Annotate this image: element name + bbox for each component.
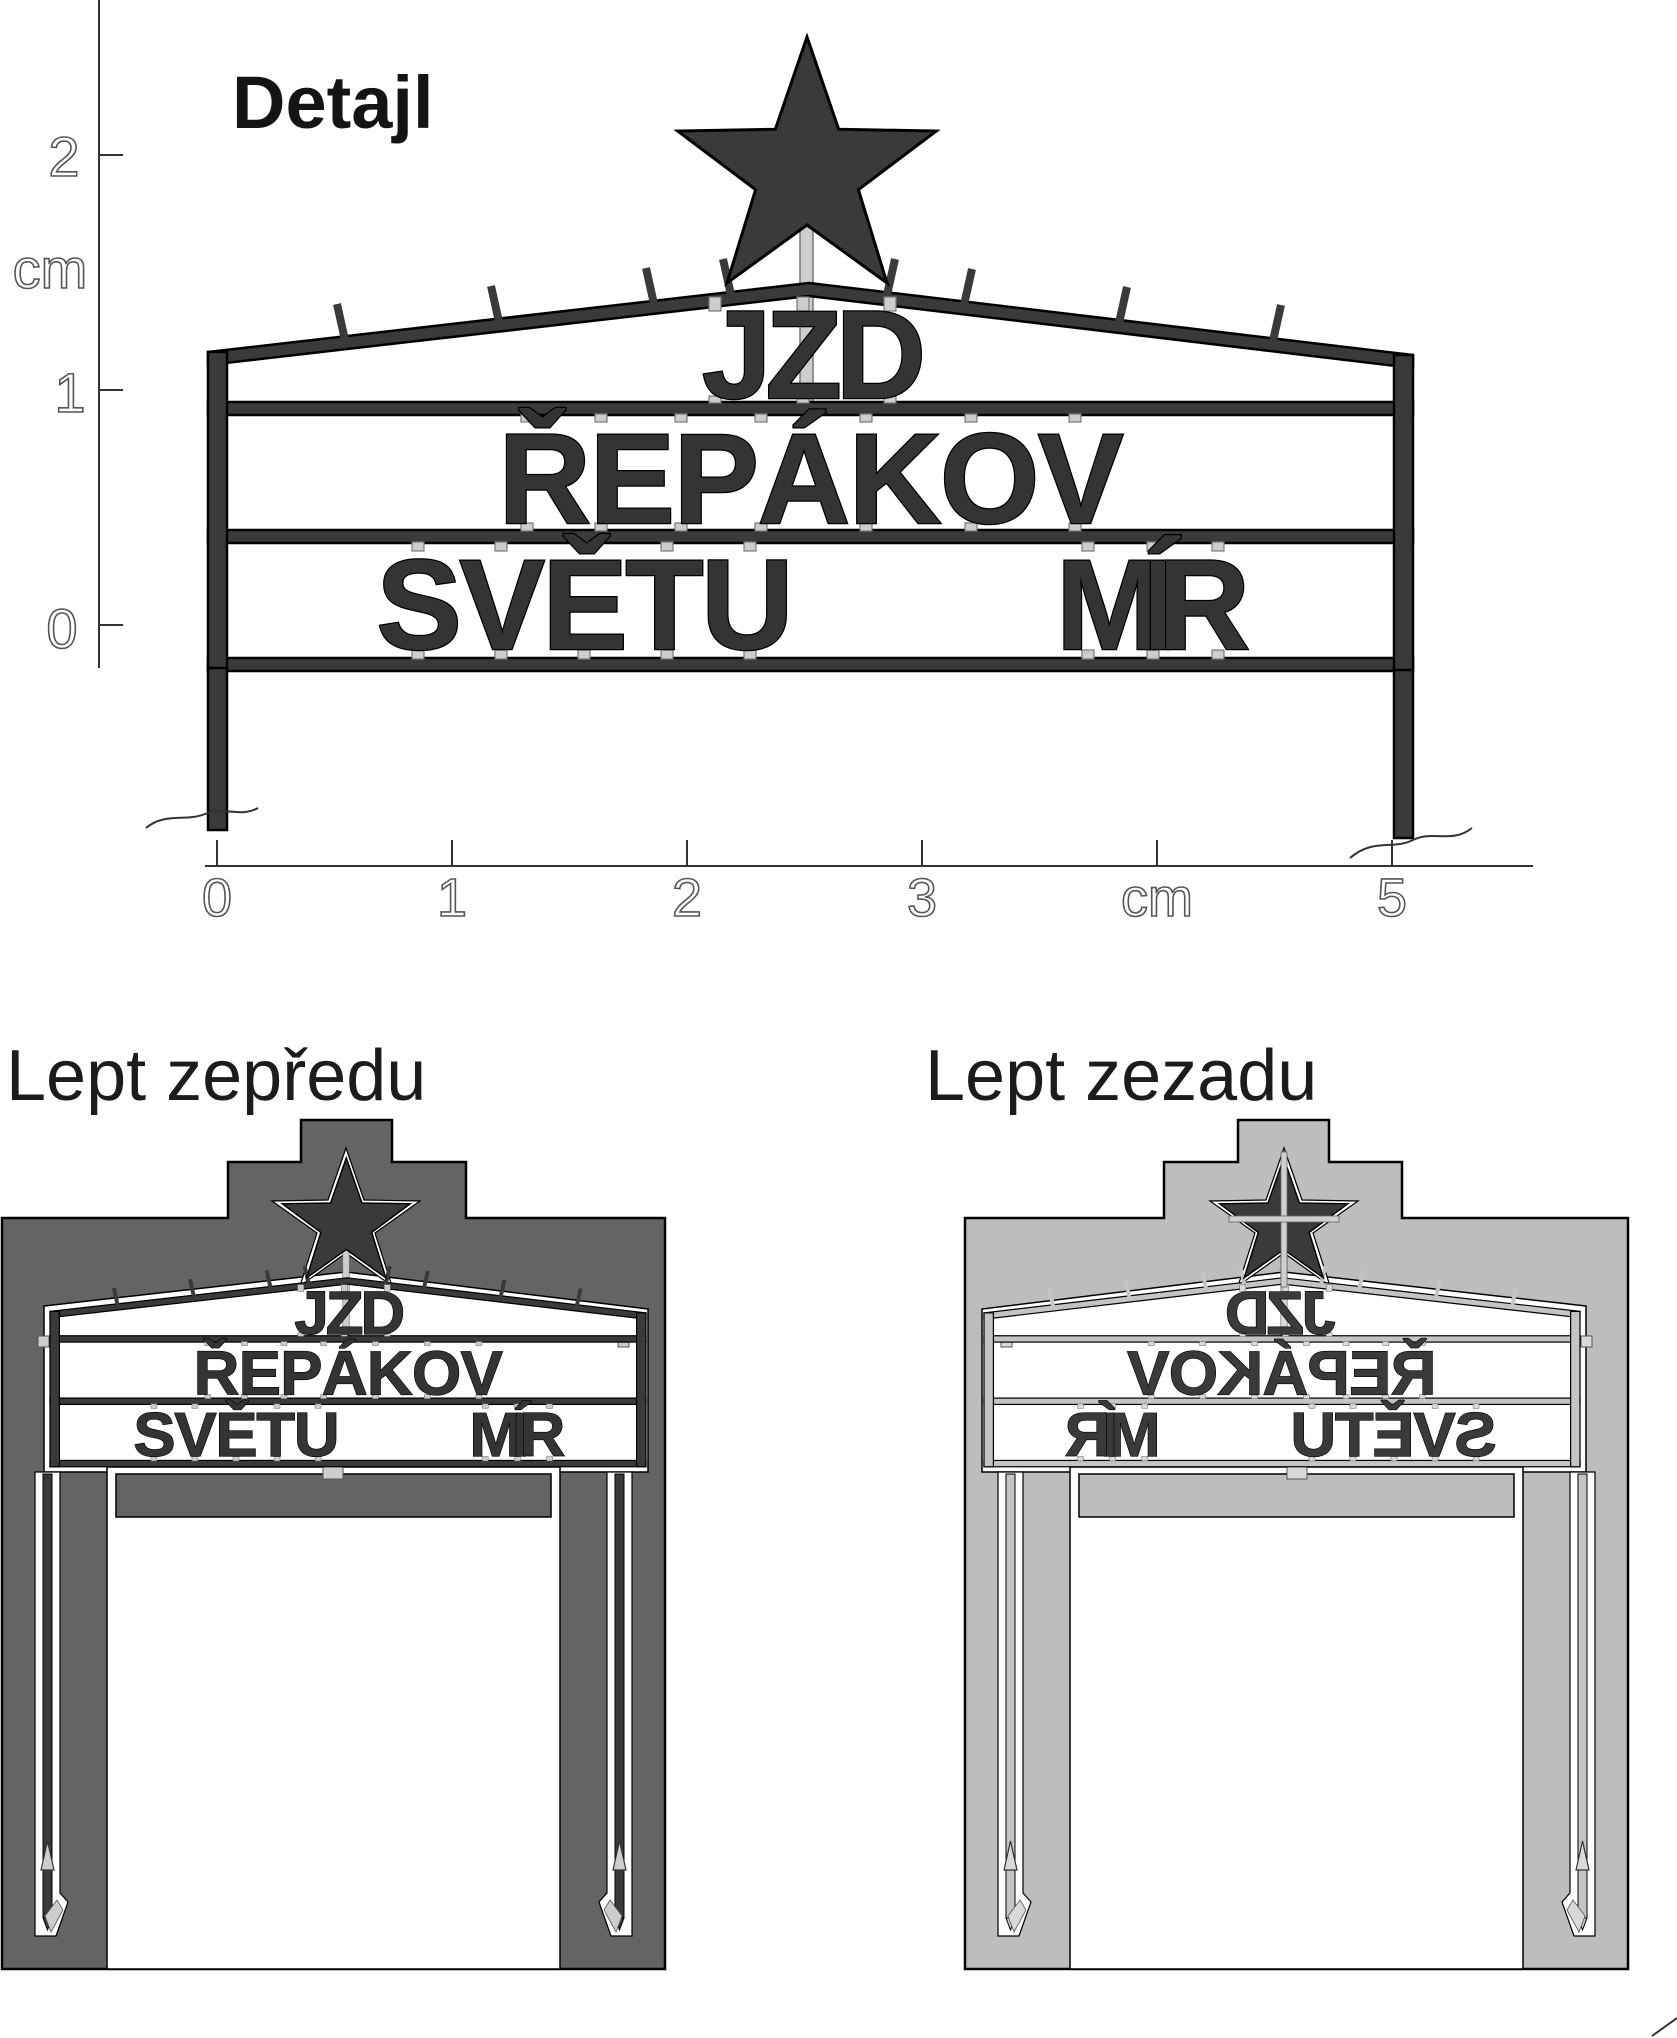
ground-line-left [146, 808, 258, 828]
v-ruler-label-0: 0 [46, 597, 77, 660]
h-ruler-label-1: 1 [437, 868, 467, 928]
h-ruler-label-0: 0 [202, 868, 232, 928]
v-ruler-label-cm: cm [13, 237, 88, 300]
back-etch-title: Lept zezadu [925, 1036, 1317, 1116]
etching-diagram: JZD ŘEPÁKOV SVĚTU MÍR [0, 0, 1677, 2038]
front-etch [2, 1120, 665, 1969]
v-ruler-label-1: 1 [54, 361, 85, 424]
h-ruler-label-5: 5 [1377, 868, 1407, 928]
h-ruler-label-3: 3 [907, 868, 937, 928]
front-etch-title: Lept zepředu [6, 1036, 426, 1116]
horizontal-ruler: 0 1 2 3 cm 5 [202, 840, 1533, 928]
v-ruler-label-2: 2 [48, 125, 79, 188]
vertical-ruler: 2 cm 1 0 [13, 0, 123, 668]
detail-legs [146, 668, 1472, 858]
detail-title: Detajl [232, 61, 434, 144]
back-etch [965, 1120, 1628, 1969]
corner-mark [1652, 2018, 1677, 2036]
h-ruler-label-2: 2 [672, 868, 702, 928]
diagram-page: JZD ŘEPÁKOV SVĚTU MÍR [0, 0, 1677, 2038]
h-ruler-label-cm: cm [1121, 868, 1193, 928]
